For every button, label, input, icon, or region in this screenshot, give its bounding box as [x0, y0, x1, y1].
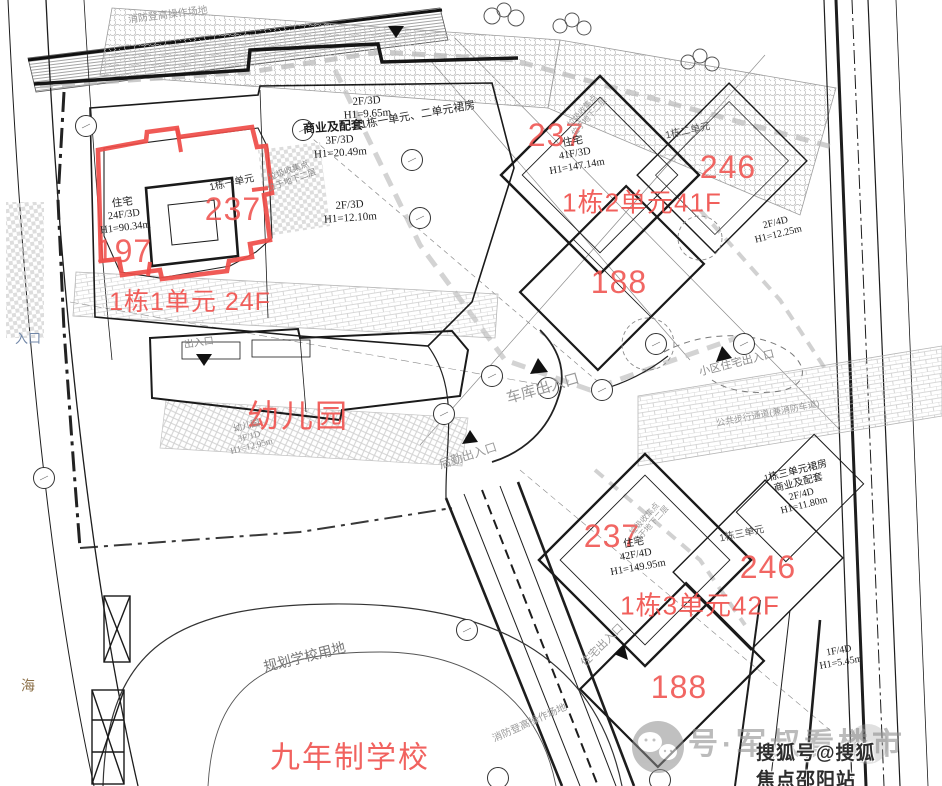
unit3-area-246: 246	[740, 551, 796, 585]
podium-lower-spec: 2F/3D H1=12.10m	[323, 197, 378, 227]
road-sea-label: 海	[21, 679, 35, 694]
unit3-area-188: 188	[651, 671, 707, 705]
unit1-area-197: 197	[96, 235, 152, 269]
unit2-caption: 1栋2单元41F	[562, 189, 722, 216]
unit2-area-188: 188	[591, 266, 647, 300]
unit2-area-246: 246	[700, 151, 756, 185]
unit1-spec-block: 住宅 24F/3D H1=90.34m	[97, 194, 152, 237]
unit3-caption: 1栋3单元42F	[620, 592, 780, 619]
podium-spec: 3F/3D H1=20.49m	[313, 132, 368, 162]
road-entry-label: 入口	[15, 332, 41, 346]
stair-structures	[92, 596, 130, 784]
west-road	[8, 0, 138, 786]
site-plan-drawing	[0, 0, 942, 786]
school-name: 九年制学校	[270, 742, 430, 774]
plaza-checker-2	[6, 202, 44, 338]
unit1-caption: 1栋1单元 24F	[109, 289, 271, 315]
site-plan: 消防登高操作场地 消防登高操作场地 237 197 住宅 24F/3D H1=9…	[0, 0, 942, 786]
unit1-area-237: 237	[205, 193, 261, 227]
sohu-watermark-text: 搜狐号@搜狐焦点邵阳站	[756, 738, 880, 786]
